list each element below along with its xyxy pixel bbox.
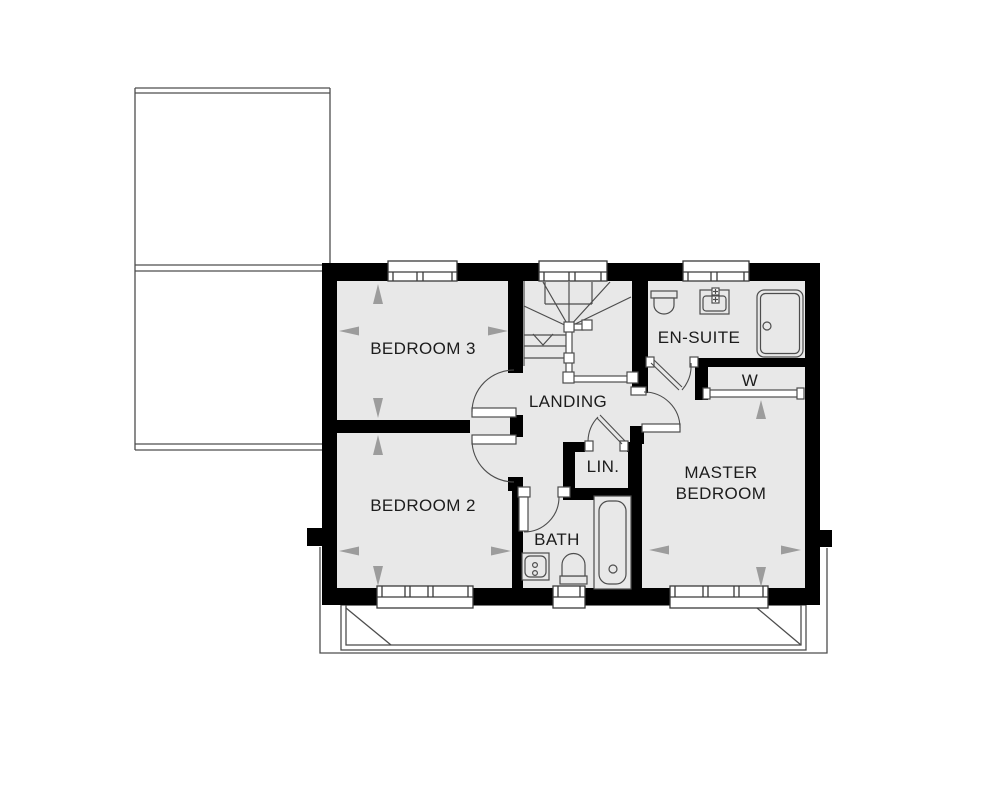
room-label-landing: LANDING [508,391,628,412]
bedroom2-door-leaf [472,435,516,444]
master-door-leaf [642,424,680,432]
floor-plan: BEDROOM 3 BEDROOM 2 LANDING LIN. BATH EN… [0,0,988,800]
room-label-master-bedroom: MASTER BEDROOM [660,462,782,504]
window-stairs [539,261,607,281]
room-label-bath: BATH [512,529,602,550]
wash-basin-icon [700,288,729,314]
bath-door-leaf [519,497,528,531]
door-jamb [558,487,570,497]
door-jamb [631,387,646,395]
window-ensuite [683,261,749,281]
floor-plan-drawing [0,0,988,800]
room-label-linen: LIN. [563,456,643,477]
door-jamb [518,487,530,497]
window-bath [553,586,585,608]
shower-icon [757,290,803,357]
window-bedroom2 [377,586,473,608]
bath-toilet-icon [560,554,587,585]
room-label-bedroom-3: BEDROOM 3 [337,338,509,359]
room-label-wardrobe: W [697,370,803,391]
door-jamb [646,357,654,367]
room-label-ensuite: EN-SUITE [645,327,753,348]
bath-basin-icon [522,553,549,580]
adjacent-structure-outline [135,88,330,450]
room-label-bedroom-2: BEDROOM 2 [337,495,509,516]
window-master [670,586,768,608]
door-jamb [585,441,593,451]
window-bedroom3 [388,261,457,281]
